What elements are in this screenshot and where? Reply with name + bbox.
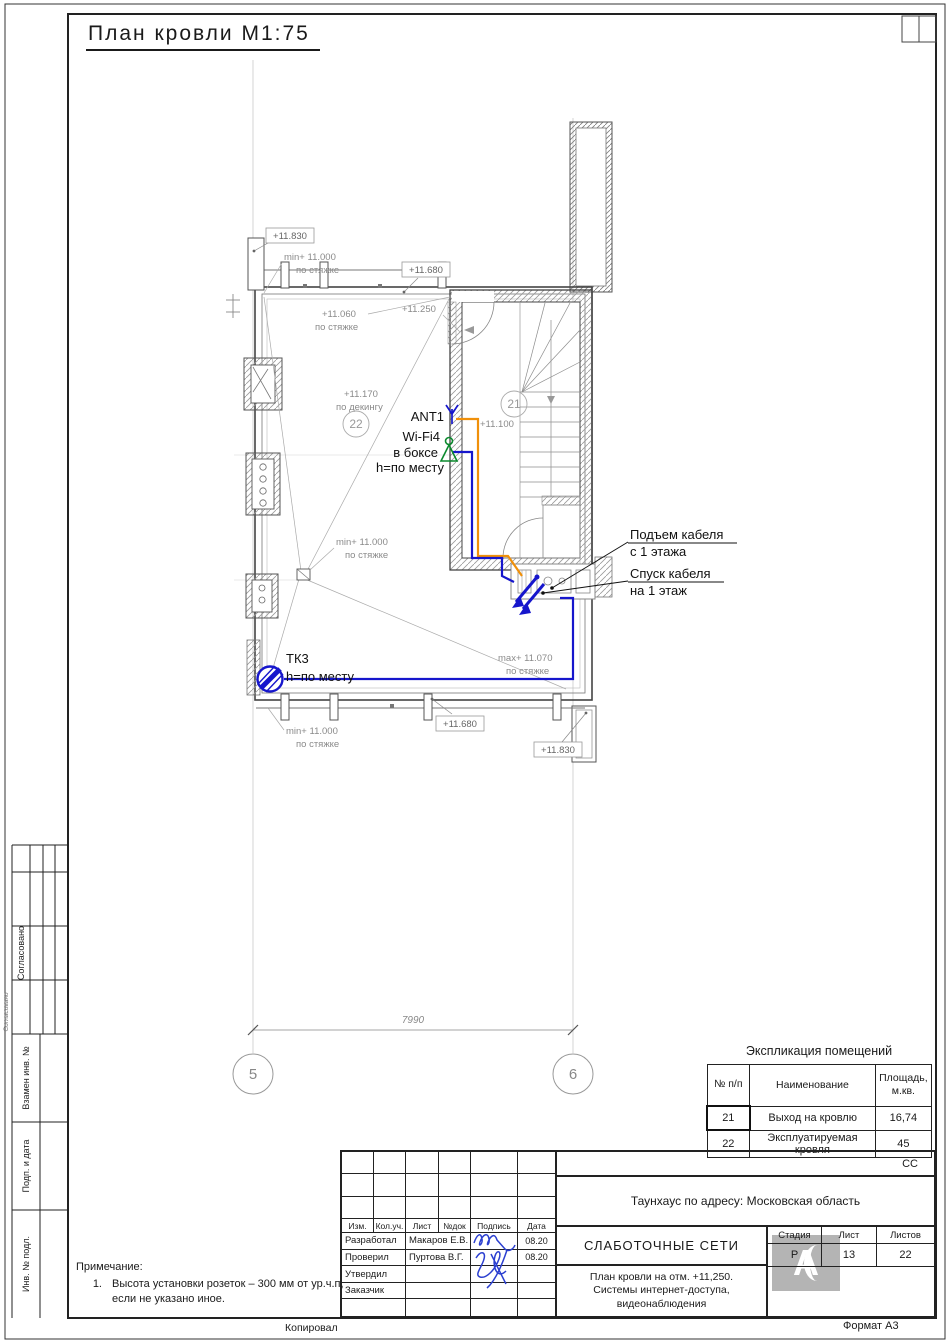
page-title: План кровли М1:75 — [86, 22, 320, 51]
explication-title: Экспликация помещений — [706, 1044, 932, 1058]
grid-axes — [234, 60, 573, 1053]
riser-arrows-icon — [512, 575, 544, 616]
stair-enclosure — [448, 290, 592, 570]
svg-text:+11.250: +11.250 — [402, 304, 436, 315]
cable-riser-box — [511, 564, 595, 599]
wifi-ap-icon — [441, 438, 457, 462]
svg-text:7990: 7990 — [402, 1015, 425, 1026]
stair-treads — [520, 303, 580, 497]
explication-col-number: № п/п — [707, 1065, 750, 1107]
understair-hatch — [542, 496, 580, 505]
svg-text:Wi-Fi4: Wi-Fi4 — [402, 429, 440, 444]
note-title: Примечание: — [76, 1260, 386, 1275]
chimney-shaft — [570, 122, 612, 292]
cable-blue-perimeter — [284, 598, 573, 679]
svg-text:6: 6 — [569, 1066, 577, 1083]
svg-text:на 1 этаж: на 1 этаж — [630, 583, 687, 598]
svg-text:Подъем кабеля: Подъем кабеля — [630, 527, 723, 542]
svg-text:по стяжке: по стяжке — [315, 322, 358, 333]
svg-text:по декингу: по декингу — [336, 402, 383, 413]
copied-label: Копировал — [285, 1322, 338, 1334]
svg-text:по стяжке: по стяжке — [296, 739, 339, 750]
document-code: СС — [557, 1152, 934, 1177]
inv-no-label: Инв. № подл. — [21, 1236, 31, 1292]
roof-drain — [297, 569, 310, 580]
svg-text:h=по месту: h=по месту — [286, 669, 354, 684]
explication-table: Экспликация помещений № п/п Наименование… — [706, 1044, 932, 1158]
titleblock-row-developer: Разработал Макаров Е.В. 08.20 — [342, 1233, 555, 1250]
svg-text:+11.830: +11.830 — [541, 745, 575, 756]
ant1-antenna-icon — [446, 405, 458, 424]
explication-col-area: Площадь, м.кв. — [875, 1065, 931, 1107]
svg-text:ТК3: ТК3 — [286, 651, 309, 666]
cable-orange — [456, 419, 522, 576]
sign-date-label: Подп. и дата — [21, 1139, 31, 1192]
table-row: 21 Выход на кровлю 16,74 — [707, 1106, 932, 1130]
svg-text:max+ 11.070: max+ 11.070 — [498, 653, 553, 664]
drawing-sheet: План кровли М1:75 Экспликация помещений … — [0, 0, 950, 1344]
approved-label-small: Согласовано — [3, 992, 10, 1031]
equipment-labels: ANT1 Wi-Fi4 в боксе h=по месту ТК3 h=по … — [286, 409, 444, 684]
tk3-camera-icon — [258, 666, 284, 692]
stair-direction-arrow — [547, 396, 555, 404]
svg-text:+11.830: +11.830 — [273, 231, 307, 242]
svg-text:по стяжке: по стяжке — [345, 550, 388, 561]
sheet-number: 13 — [822, 1244, 877, 1266]
dimension-7990: 7990 — [248, 1015, 578, 1035]
stage-value-row: Р 13 22 — [768, 1244, 934, 1267]
svg-text:+11.680: +11.680 — [443, 719, 477, 730]
svg-text:+11.100: +11.100 — [480, 419, 514, 430]
svg-text:ANT1: ANT1 — [411, 409, 444, 424]
sheets-total: 22 — [877, 1244, 934, 1266]
understair-closet — [543, 505, 580, 558]
drawing-description: План кровли на отм. +11,250. Системы инт… — [557, 1266, 766, 1316]
svg-text:h=по месту: h=по месту — [376, 460, 444, 475]
room-number-22: 22 — [343, 411, 369, 437]
approved-label: Согласовано — [16, 926, 26, 980]
left-stamp-margin — [12, 845, 68, 1318]
top-railing — [256, 262, 450, 288]
svg-text:по стяжке: по стяжке — [296, 265, 339, 276]
titleblock-header-row: Изм. Кол.уч. Лист №док Подпись Дата — [342, 1219, 555, 1233]
svg-text:5: 5 — [249, 1066, 257, 1083]
elevation-labels: +11.830 min+ 11.000 по стяжке +11.680 +1… — [253, 228, 588, 757]
svg-text:min+ 11.000: min+ 11.000 — [284, 252, 336, 263]
side-shaft — [595, 557, 612, 597]
room-number-21: 21 — [501, 391, 527, 417]
stage-header-row: Стадия Лист Листов — [768, 1227, 934, 1244]
section-mark — [226, 294, 240, 318]
svg-text:Спуск кабеля: Спуск кабеля — [630, 566, 711, 581]
svg-text:22: 22 — [349, 417, 363, 431]
replace-inv-label: Взамен инв. № — [21, 1046, 31, 1110]
svg-text:+11.170: +11.170 — [344, 389, 378, 400]
project-name: СЛАБОТОЧНЫЕ СЕТИ — [557, 1227, 766, 1266]
cable-blue-riser — [452, 452, 514, 582]
cable-callouts: Подъем кабеля с 1 этажа Спуск кабеля на … — [541, 527, 737, 598]
signature-cell — [471, 1233, 518, 1249]
axis-bubble-6: 6 — [553, 1054, 593, 1094]
door-arrow-icon — [464, 326, 474, 334]
svg-text:по стяжке: по стяжке — [506, 666, 549, 677]
left-pilasters — [244, 238, 282, 695]
svg-text:min+ 11.000: min+ 11.000 — [286, 726, 338, 737]
svg-text:+11.060: +11.060 — [322, 309, 356, 320]
lower-door-swing — [503, 518, 543, 558]
svg-text:min+ 11.000: min+ 11.000 — [336, 537, 388, 548]
svg-text:в боксе: в боксе — [393, 445, 438, 460]
project-address: Таунхаус по адресу: Московская область — [557, 1177, 934, 1227]
downpipe-shaft — [572, 706, 596, 762]
format-label: Формат А3 — [843, 1320, 899, 1332]
stage-value: Р — [768, 1244, 822, 1266]
roof-slope-lines — [264, 297, 566, 692]
svg-text:+11.680: +11.680 — [409, 265, 443, 276]
note-block: Примечание: 1. Высота установки розеток … — [76, 1260, 386, 1307]
explication-col-name: Наименование — [750, 1065, 876, 1107]
svg-text:21: 21 — [507, 397, 521, 411]
axis-bubble-5: 5 — [233, 1054, 273, 1094]
signature-cell — [471, 1250, 518, 1266]
bottom-railing — [256, 694, 585, 720]
svg-text:с 1 этажа: с 1 этажа — [630, 544, 687, 559]
roof-outline — [255, 287, 592, 700]
title-block: Изм. Кол.уч. Лист №док Подпись Дата Разр… — [340, 1150, 936, 1318]
